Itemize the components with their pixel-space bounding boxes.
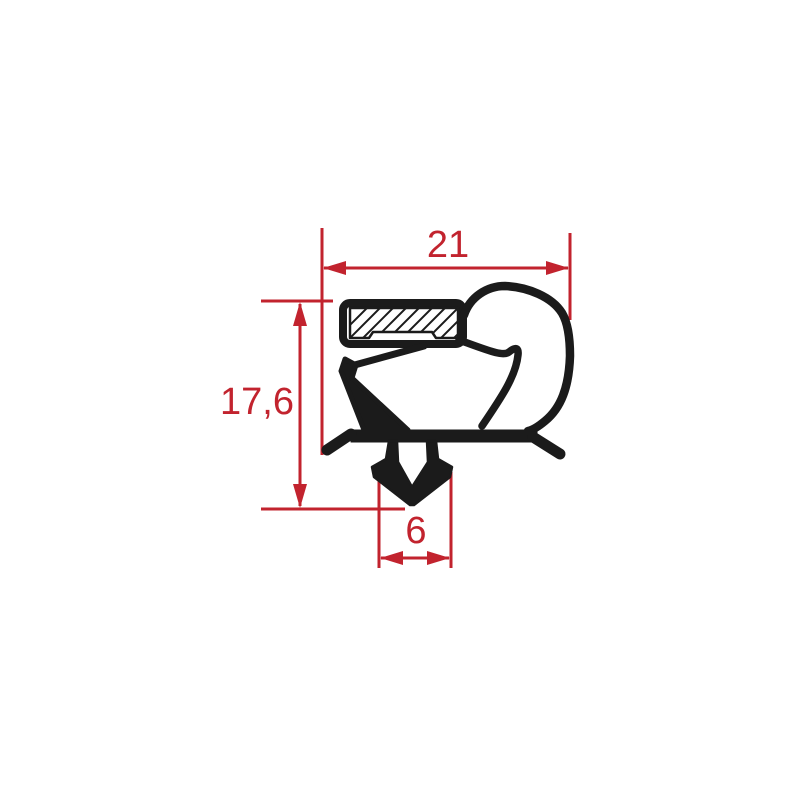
gasket-profile-drawing [0,0,800,800]
arrowhead-barb-right-icon [427,551,450,565]
bellows-wall [351,346,424,366]
mounting-bar [351,430,537,442]
gasket-profile [327,286,570,505]
dimension-label-height: 17,6 [220,383,294,421]
arrowhead-width-right-icon [546,261,569,275]
arrowhead-barb-left-icon [380,551,403,565]
bellows-wedge [341,359,408,430]
technical-drawing-canvas: 21 17,6 6 [0,0,800,800]
barb-arrow [372,441,452,505]
right-foot [533,437,560,454]
dimension-label-width: 21 [427,226,469,264]
arrowhead-height-bottom-icon [293,484,307,508]
hook-wall [459,340,518,426]
arrowhead-height-top-icon [293,302,307,326]
left-foot [327,434,351,450]
dimension-label-barb-width: 6 [405,512,426,550]
arrowhead-width-left-icon [323,261,346,275]
